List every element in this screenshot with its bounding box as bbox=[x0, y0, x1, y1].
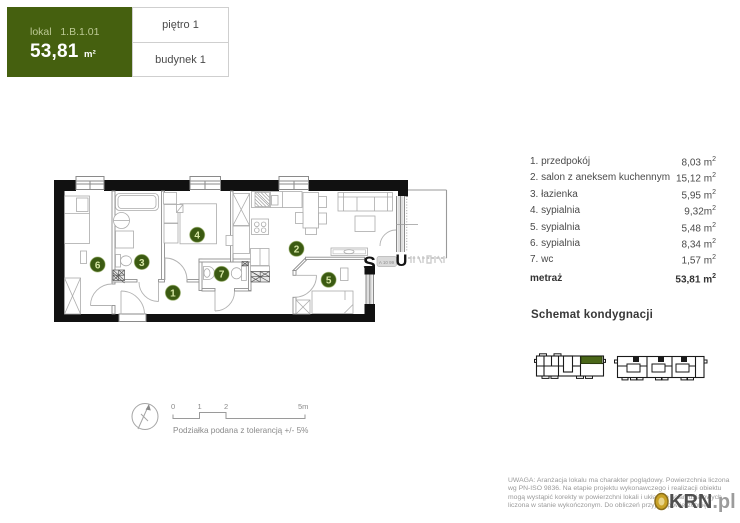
svg-text:7: 7 bbox=[219, 270, 225, 281]
svg-text:1: 1 bbox=[170, 289, 176, 300]
svg-text:U: U bbox=[396, 252, 408, 270]
svg-text:3: 3 bbox=[139, 258, 145, 269]
svg-text:2: 2 bbox=[294, 245, 300, 256]
svg-text:A 10 99: A 10 99 bbox=[379, 260, 395, 265]
svg-text:S: S bbox=[363, 254, 376, 275]
svg-text:6: 6 bbox=[95, 260, 101, 271]
svg-text:4: 4 bbox=[194, 231, 200, 242]
svg-text:5: 5 bbox=[326, 276, 332, 287]
